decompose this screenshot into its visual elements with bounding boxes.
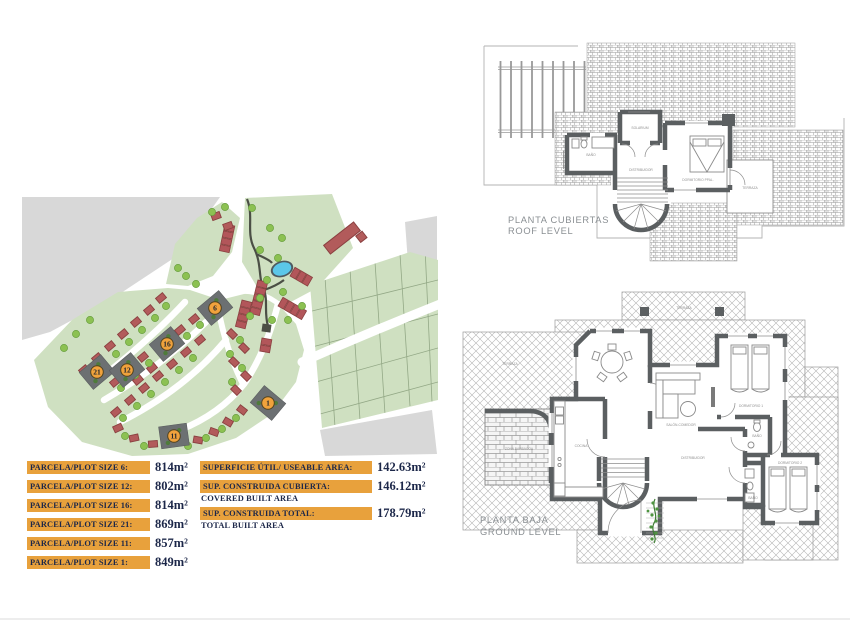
- plot-size-table: PARCELA/PLOT SIZE 6: 814m² PARCELA/PLOT …: [27, 461, 188, 575]
- table-row: SUPERFICIE ÚTIL/ USEABLE AREA: 142.63m²: [200, 461, 426, 474]
- room-label: BAÑO: [586, 152, 596, 157]
- plot-value: 869m²: [155, 518, 188, 530]
- plot-value: 857m²: [155, 537, 188, 549]
- svg-text:1: 1: [266, 399, 270, 408]
- porch-pillar: [640, 307, 649, 316]
- plan-sheet: 6 16 21 12 11 1: [0, 0, 850, 620]
- community-plaza: [261, 323, 271, 332]
- plot-value: 814m²: [155, 499, 188, 511]
- ground-plan-title: PLANTA BAJA: [480, 515, 549, 525]
- room-label: BAÑO: [752, 433, 762, 438]
- plot-value: 802m²: [155, 480, 188, 492]
- plot-label: PARCELA/PLOT SIZE 6:: [27, 461, 150, 474]
- room-label: TERRAZA: [742, 186, 758, 190]
- plot-value: 849m²: [155, 556, 188, 568]
- room-label: DORMITORIO 2: [778, 461, 802, 465]
- plot-marker-12: 12: [121, 364, 134, 377]
- site-plan-map: 6 16 21 12 11 1: [20, 192, 440, 460]
- area-value: 142.63m²: [377, 461, 426, 473]
- plot-label: PARCELA/PLOT SIZE 21:: [27, 518, 150, 531]
- plot-label: PARCELA/PLOT SIZE 12:: [27, 480, 150, 493]
- svg-text:21: 21: [93, 368, 101, 377]
- roof-bed: [690, 136, 724, 172]
- plot-label: PARCELA/PLOT SIZE 16:: [27, 499, 150, 512]
- built-area-table: SUPERFICIE ÚTIL/ USEABLE AREA: 142.63m² …: [200, 461, 426, 534]
- table-row: PARCELA/PLOT SIZE 16: 814m²: [27, 499, 188, 512]
- roof-bathroom-fixtures: [572, 137, 614, 148]
- tv-unit: [711, 387, 715, 407]
- area-label: SUP. CONSTRUIDA TOTAL:: [200, 507, 372, 520]
- room-label: TERRAZA: [502, 362, 518, 366]
- ground-plan-subtitle: GROUND LEVEL: [480, 527, 561, 537]
- area-label: SUPERFICIE ÚTIL/ USEABLE AREA:: [200, 461, 372, 474]
- table-row: PARCELA/PLOT SIZE 6: 814m²: [27, 461, 188, 474]
- room-label: DORMITORIO PPAL.: [682, 178, 713, 182]
- table-row: PARCELA/PLOT SIZE 11: 857m²: [27, 537, 188, 550]
- room-label: COCINA: [575, 444, 589, 448]
- roof-plan-title: PLANTA CUBIERTAS: [508, 215, 609, 225]
- room-label: TERRAZA: [676, 306, 692, 310]
- table-row-group: SUP. CONSTRUIDA CUBIERTA: 146.12m² COVER…: [200, 480, 426, 503]
- room-label: DISTRIBUIDOR: [629, 168, 653, 172]
- room-label: SOLARIUM: [631, 126, 648, 130]
- area-value: 178.79m²: [377, 507, 426, 519]
- plot-value: 814m²: [155, 461, 188, 473]
- room-label: SALÓN-COMEDOR: [666, 422, 696, 427]
- plot-label: PARCELA/PLOT SIZE 11:: [27, 537, 150, 550]
- area-value: 146.12m²: [377, 480, 426, 492]
- room-label: DISTRIBUIDOR: [681, 456, 705, 460]
- area-label: SUP. CONSTRUIDA CUBIERTA:: [200, 480, 372, 493]
- table-row: PARCELA/PLOT SIZE 21: 869m²: [27, 518, 188, 531]
- ground-plan: TERRAZA TERRAZA ZONA BARBACOA COCINA SAL…: [460, 287, 850, 572]
- roof-plan: SOLARIUM BAÑO DISTRIBUIDOR DORMITORIO PP…: [460, 30, 850, 270]
- roof-plan-subtitle: ROOF LEVEL: [508, 226, 573, 236]
- room-label: ZONA BARBACOA: [505, 447, 534, 451]
- svg-text:6: 6: [213, 304, 217, 313]
- svg-text:11: 11: [170, 432, 177, 441]
- table-row: PARCELA/PLOT SIZE 1: 849m²: [27, 556, 188, 569]
- plot-label: PARCELA/PLOT SIZE 1:: [27, 556, 150, 569]
- area-sublabel: COVERED BUILT AREA: [201, 494, 426, 503]
- plot-marker-11: 11: [168, 430, 181, 443]
- plot-marker-6: 6: [209, 302, 222, 315]
- room-label: DORMITORIO 1: [739, 404, 763, 408]
- svg-text:12: 12: [123, 366, 131, 375]
- area-sublabel: TOTAL BUILT AREA: [201, 521, 426, 530]
- plot-marker-1: 1: [262, 397, 275, 410]
- svg-text:16: 16: [163, 340, 171, 349]
- porch-pillar: [715, 307, 724, 316]
- room-label: BAÑO: [748, 495, 758, 500]
- plot-marker-16: 16: [161, 338, 174, 351]
- table-row: PARCELA/PLOT SIZE 12: 802m²: [27, 480, 188, 493]
- table-row-group: SUP. CONSTRUIDA TOTAL: 178.79m² TOTAL BU…: [200, 507, 426, 530]
- plot-marker-21: 21: [91, 366, 104, 379]
